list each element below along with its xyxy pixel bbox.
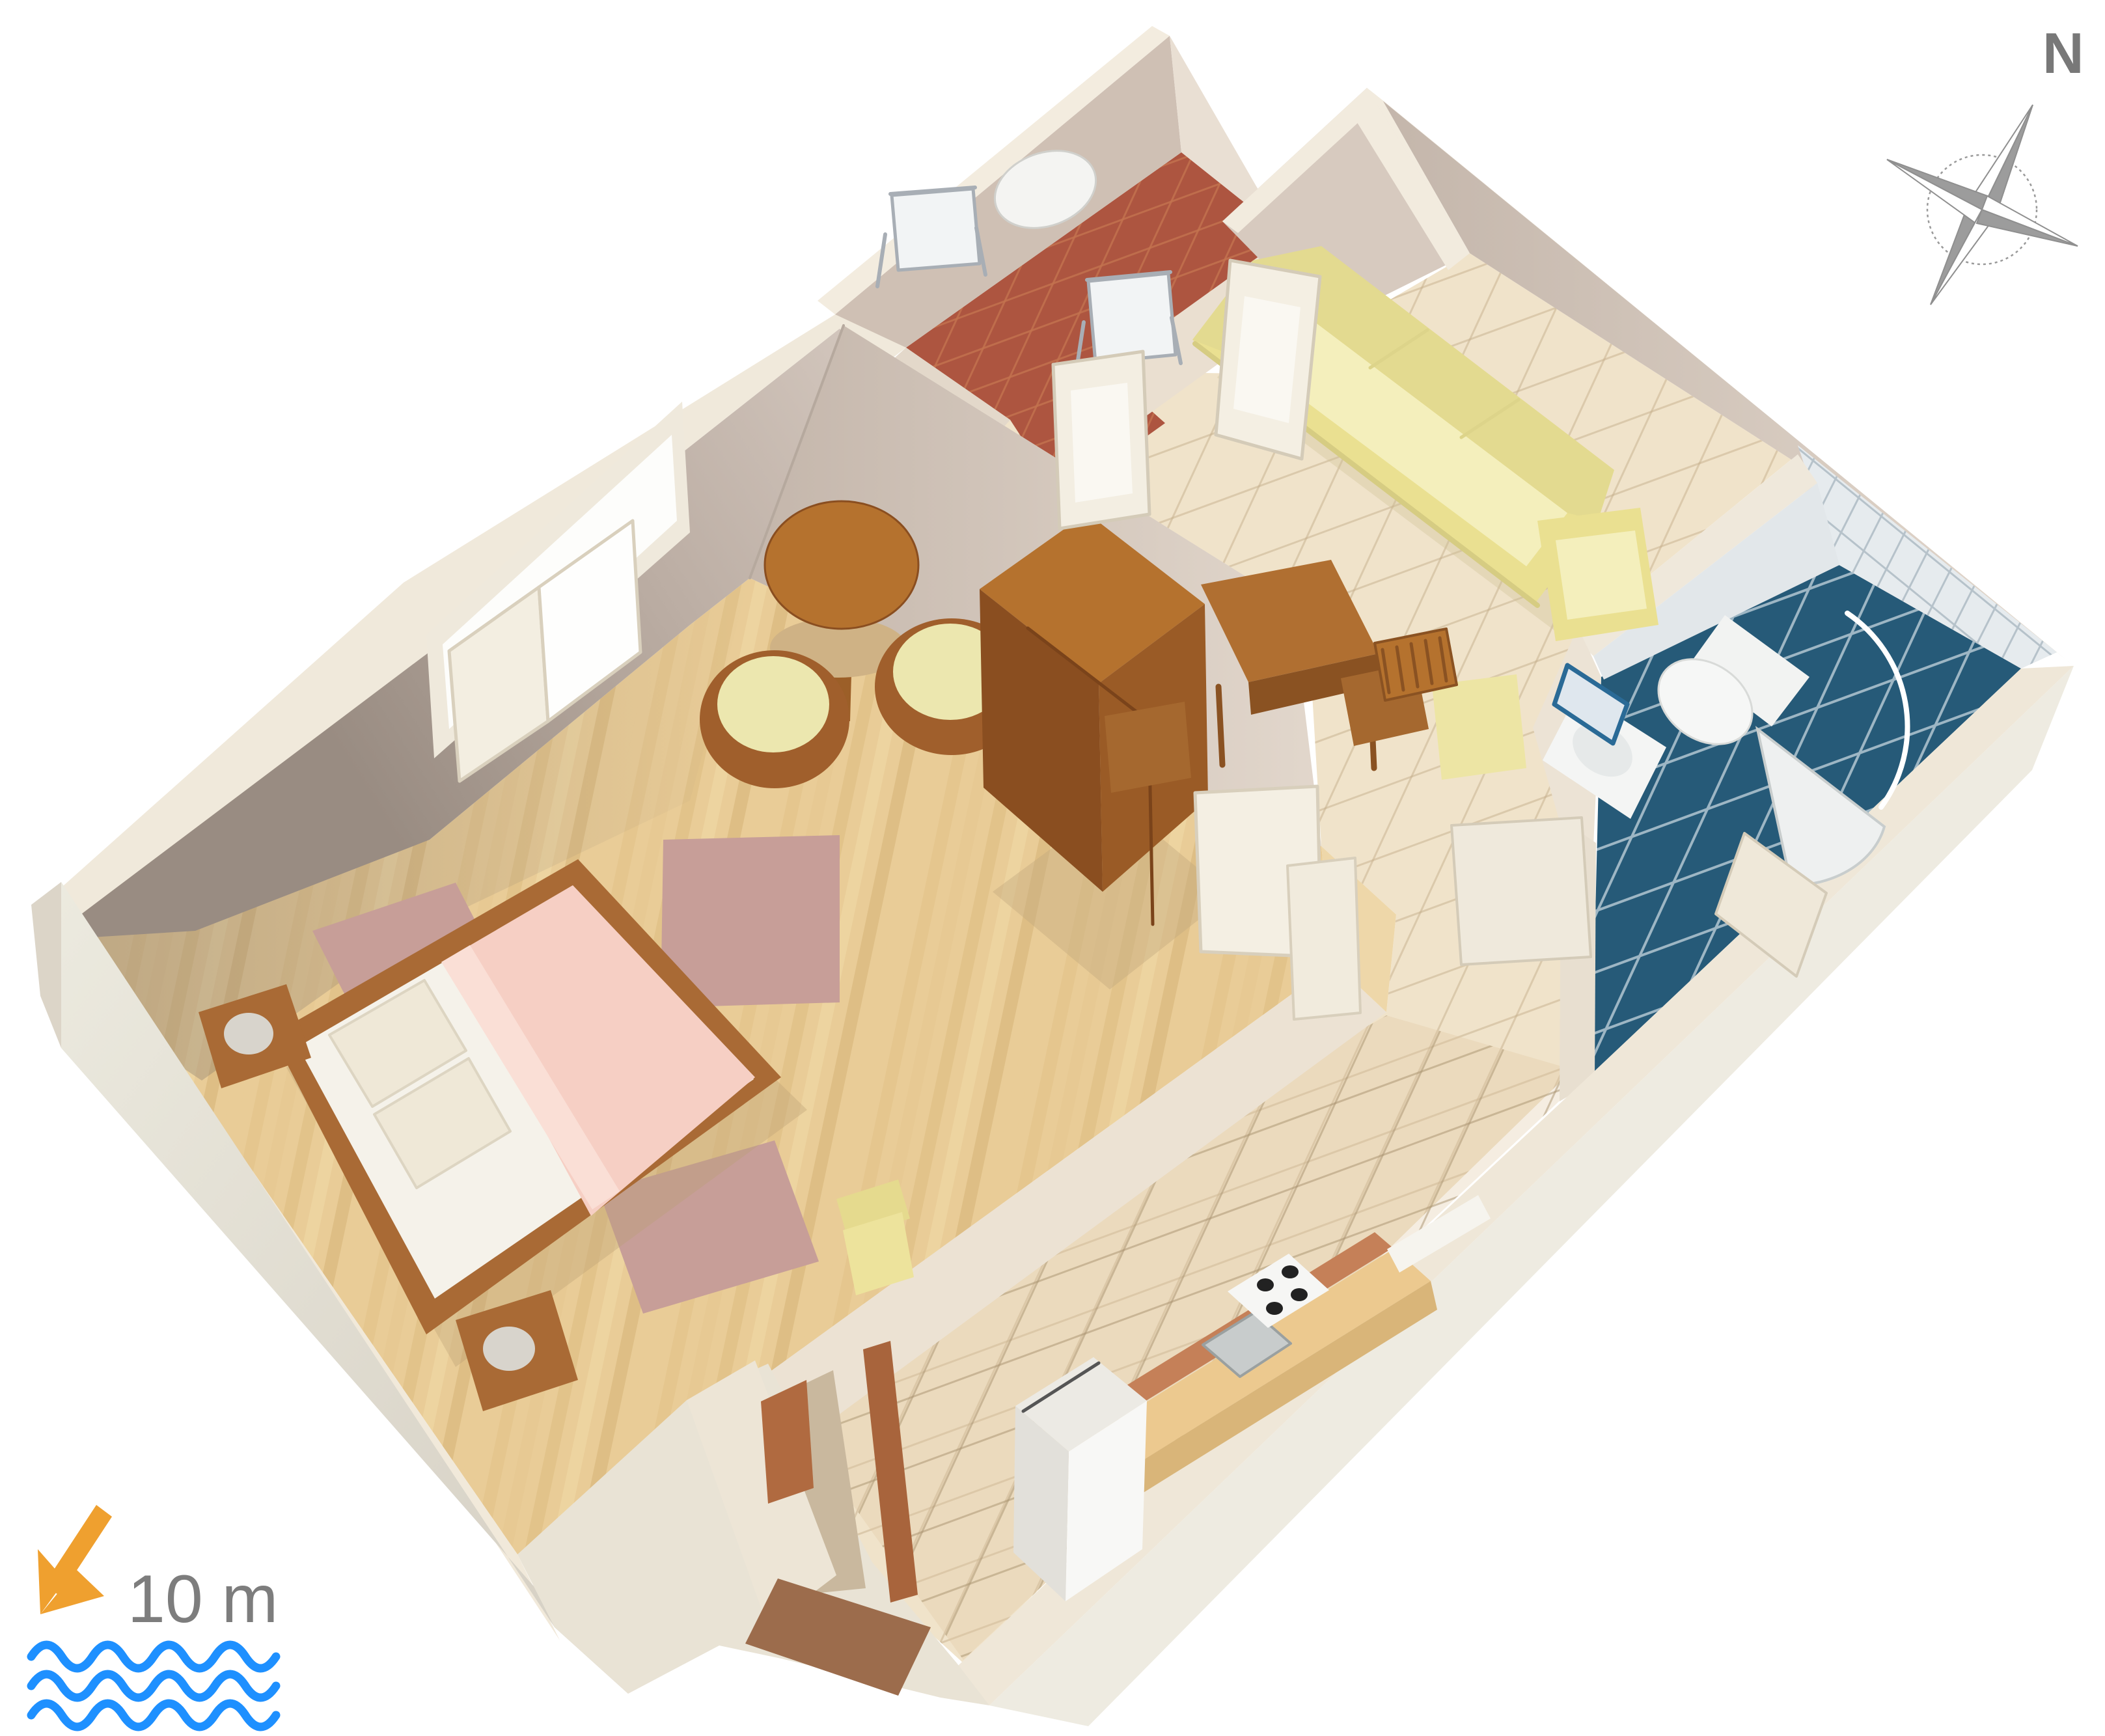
svg-text:N: N — [2043, 21, 2084, 85]
svg-text:10 m: 10 m — [128, 1562, 278, 1637]
